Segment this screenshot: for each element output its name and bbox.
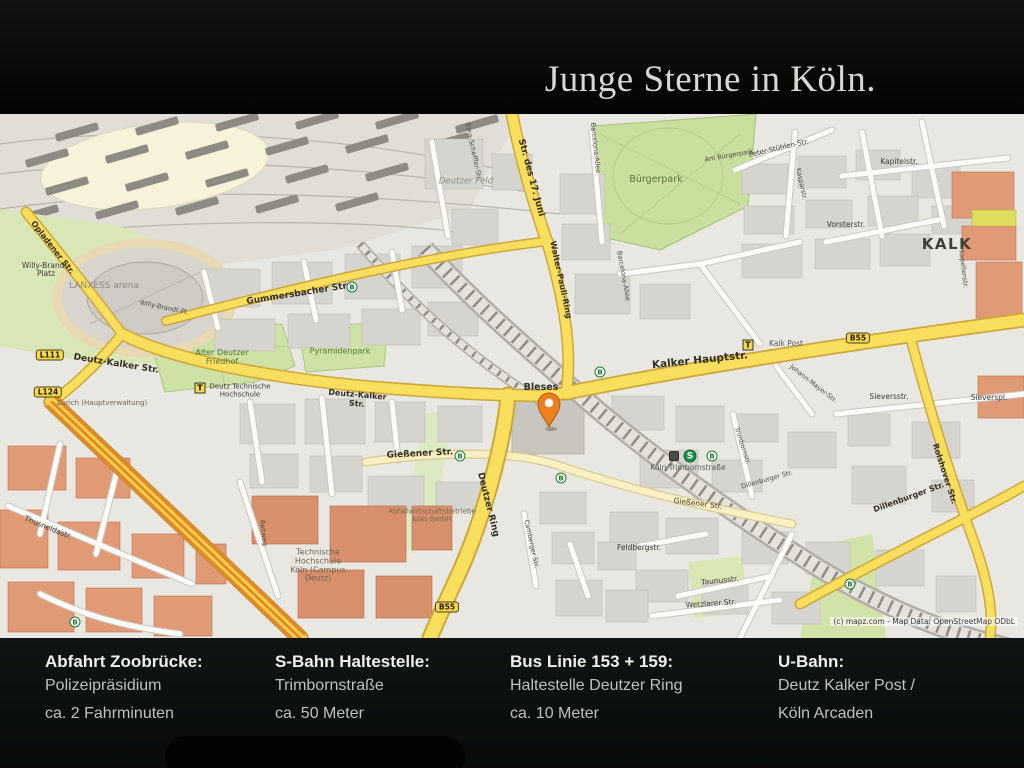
bus-stop-badge: B [707, 451, 718, 462]
map-label: Feldbergstr. [617, 544, 661, 552]
map-label: Deutzer Feld [439, 177, 493, 186]
map-label: Camberger Str. [522, 519, 539, 569]
map-label: Barcelona-Allee [615, 250, 631, 301]
map-label: Am Bürgerpark [704, 148, 754, 164]
map-label: Deutz-Kalker Str. [327, 389, 387, 412]
column-line: ca. 2 Fahrminuten [45, 700, 203, 728]
bus-stop-badge: B [845, 579, 856, 590]
tram-stop-badge: T [195, 383, 206, 394]
map-label: Gießener Str. [386, 448, 453, 461]
map-label: Zurich (Hauptverwaltung) [57, 400, 148, 408]
route-badge-b55: B55 [435, 602, 459, 613]
transit-column-ubahn: U-Bahn: Deutz Kalker Post / Köln Arcaden [778, 638, 915, 728]
map-label: Barcelona-Allee [589, 122, 601, 173]
map-label: Rolshover Str. [930, 443, 958, 506]
tram-stop-badge: T [743, 340, 754, 351]
map-label: Opladener Str. [28, 220, 75, 277]
map-label: Sieverspl. [971, 394, 1008, 402]
map-label: Gießener Str. [673, 497, 723, 511]
redaction-blob [165, 736, 465, 768]
map-label: Dillenburger Str. [741, 469, 794, 490]
map-label: Taunusstr. [701, 575, 739, 587]
map-label: LANXESS arena [69, 282, 139, 292]
sbahn-badge: S [684, 450, 697, 463]
transit-column-sbahn: S-Bahn Haltestelle: Trimbornstraße ca. 5… [275, 638, 430, 728]
map-label: Deutz Technische Hochschule [209, 383, 270, 398]
header-bar: Junge Sterne in Köln. [0, 0, 1024, 114]
map-label: Köln Trimbornstraße [650, 464, 725, 472]
map-label: Wetzlarer Str. [685, 598, 736, 610]
map-label: Thusneldastr. [23, 515, 73, 542]
bus-stop-badge: B [455, 451, 466, 462]
column-line: Haltestelle Deutzer Ring [510, 672, 683, 700]
slide: Junge Sterne in Köln. [0, 0, 1024, 768]
route-badge-b55: B55 [846, 333, 870, 344]
map-label: Kalker Hauptstr. [652, 350, 749, 372]
column-line: Polizeipräsidium [45, 672, 203, 700]
map-label: Erna-Scheffler-Str. [463, 123, 482, 182]
map-labels: Opladener Str.Willy-Brandt- PlatzWilly-B… [0, 114, 1024, 638]
bus-stop-badge: B [347, 282, 358, 293]
map-label: Pyramidenpark [310, 348, 371, 357]
route-badge-l111: L111 [36, 350, 64, 361]
map-label: Str. des 17. Juni [515, 138, 545, 218]
map-label: Johann-Mayer-Str. [788, 364, 838, 405]
bus-stop-badge: B [595, 367, 606, 378]
transit-column-bus: Bus Linie 153 + 159: Haltestelle Deutzer… [510, 638, 683, 728]
map-label: Kalk Post [769, 340, 803, 348]
column-line: Trimbornstraße [275, 672, 430, 700]
column-line: ca. 10 Meter [510, 700, 683, 728]
map-label: Kapitelstr. [880, 158, 918, 166]
map-label: Technische Hochschule Köln (Campus Deutz… [290, 548, 345, 583]
map-label: KALK [922, 236, 972, 253]
map-label: Willy-Brandt- Platz [22, 262, 70, 279]
map-canvas: Opladener Str.Willy-Brandt- PlatzWilly-B… [0, 114, 1024, 638]
map-label: Sieversstr. [869, 393, 908, 401]
map-label: Deutz-Kalker Str. [73, 353, 160, 376]
map-attribution: (c) mapz.com - Map Data: OpenStreetMap O… [830, 617, 1018, 626]
column-line: Deutz Kalker Post / [778, 672, 915, 700]
map-label: Reitweg [258, 520, 268, 547]
station-icon [669, 451, 679, 461]
bus-stop-badge: B [70, 617, 81, 628]
transit-column-zoobruecke: Abfahrt Zoobrücke: Polizeipräsidium ca. … [45, 638, 203, 728]
map-label: Deutzer Ring [474, 472, 500, 539]
map-label: Bleses [524, 383, 559, 393]
route-badge-l124: L124 [34, 387, 62, 398]
column-heading: U-Bahn: [778, 652, 915, 672]
map-label: Gummersbacher Str. [246, 282, 350, 308]
column-heading: S-Bahn Haltestelle: [275, 652, 430, 672]
map-label: Willy-Brandt-Pl. [139, 299, 189, 316]
map-label: Peter-Stühlen-Str. [748, 138, 809, 159]
map-label: Trimbornstr. [733, 426, 752, 465]
column-line: ca. 50 Meter [275, 700, 430, 728]
map-label: Abfallwirtschaftsbetriebe Köln GmbH [388, 508, 476, 523]
page-title: Junge Sterne in Köln. [545, 58, 876, 101]
map-label: Vorsterstr. [827, 221, 865, 229]
column-heading: Bus Linie 153 + 159: [510, 652, 683, 672]
map-label: Kasparstr. [794, 167, 808, 200]
map-label: Walter-Pauli-Ring [547, 240, 572, 319]
footer-bar: Abfahrt Zoobrücke: Polizeipräsidium ca. … [0, 638, 1024, 768]
bus-stop-badge: B [556, 473, 567, 484]
map-label: Kapellenstr. [957, 250, 969, 289]
map-label: Alter Deutzer Friedhof [195, 349, 248, 367]
map-label: Bürgerpark [629, 175, 682, 185]
column-line: Köln Arcaden [778, 700, 915, 728]
column-heading: Abfahrt Zoobrücke: [45, 652, 203, 672]
map-label: Dillenburger Str. [872, 481, 945, 515]
